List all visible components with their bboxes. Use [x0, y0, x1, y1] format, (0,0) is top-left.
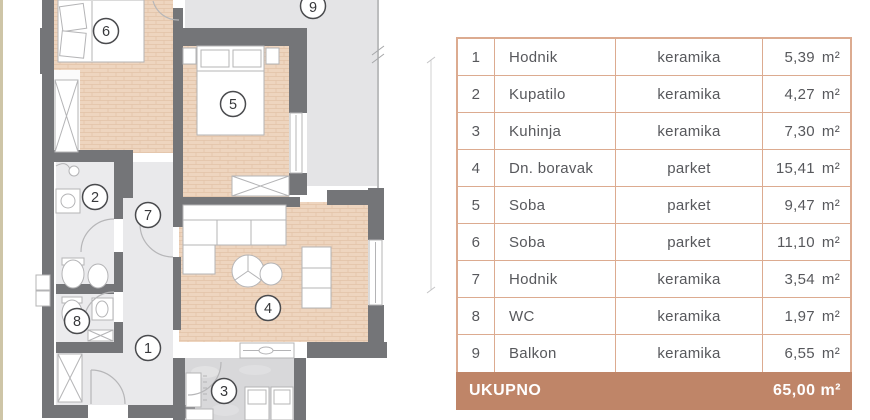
room-area: 15,41m²: [763, 150, 850, 186]
room-number: 8: [458, 298, 495, 334]
room-label: 5: [229, 97, 237, 113]
room-material: keramika: [616, 261, 763, 297]
room-number: 4: [458, 150, 495, 186]
room-name: Soba: [495, 224, 616, 260]
table-row: 8 WC keramika 1,97m²: [458, 298, 850, 335]
room-name: Kupatilo: [495, 76, 616, 112]
room-name: Hodnik: [495, 261, 616, 297]
room-area: 9,47m²: [763, 187, 850, 223]
room-area: 3,54m²: [763, 261, 850, 297]
room-material: keramika: [616, 76, 763, 112]
floorplan-page: 6 9 5 2 7 8 1 4 3 1 Hodnik keramik: [0, 0, 870, 420]
room-number: 2: [458, 76, 495, 112]
room-label: 9: [309, 0, 317, 16]
floor-plan: 6 9 5 2 7 8 1 4 3: [0, 0, 440, 420]
room-material: parket: [616, 150, 763, 186]
table-row: 1 Hodnik keramika 5,39m²: [458, 39, 850, 76]
room-number: 6: [458, 224, 495, 260]
table-row: 2 Kupatilo keramika 4,27m²: [458, 76, 850, 113]
room-area: 1,97m²: [763, 298, 850, 334]
room-area: 11,10m²: [763, 224, 850, 260]
room-label: 3: [220, 384, 228, 400]
table-row: 3 Kuhinja keramika 7,30m²: [458, 113, 850, 150]
room-area: 7,30m²: [763, 113, 850, 149]
total-label: UKUPNO: [469, 382, 541, 400]
room-number: 9: [458, 335, 495, 372]
total-row: UKUPNO 65,00 m²: [456, 372, 852, 410]
room-label: 8: [73, 314, 81, 330]
table-row: 7 Hodnik keramika 3,54m²: [458, 261, 850, 298]
room-areas-table: 1 Hodnik keramika 5,39m² 2 Kupatilo kera…: [456, 37, 852, 374]
room-name: Dn. boravak: [495, 150, 616, 186]
room-name: Kuhinja: [495, 113, 616, 149]
room-label: 6: [102, 24, 110, 40]
room-area: 5,39m²: [763, 39, 850, 75]
room-label: 7: [144, 208, 152, 224]
room-number: 5: [458, 187, 495, 223]
room-number: 3: [458, 113, 495, 149]
table-row: 9 Balkon keramika 6,55m²: [458, 335, 850, 372]
table-row: 4 Dn. boravak parket 15,41m²: [458, 150, 850, 187]
total-area: 65,00 m²: [773, 382, 841, 400]
room-label: 4: [264, 301, 272, 317]
table-row: 5 Soba parket 9,47m²: [458, 187, 850, 224]
room-material: keramika: [616, 298, 763, 334]
room-name: Balkon: [495, 335, 616, 372]
room-label: 1: [144, 341, 152, 357]
room-number: 1: [458, 39, 495, 75]
room-name: Hodnik: [495, 39, 616, 75]
room-name: Soba: [495, 187, 616, 223]
room-name: WC: [495, 298, 616, 334]
room-area: 6,55m²: [763, 335, 850, 372]
room-material: parket: [616, 187, 763, 223]
room-material: keramika: [616, 335, 763, 372]
room-material: keramika: [616, 113, 763, 149]
room-material: keramika: [616, 39, 763, 75]
room-material: parket: [616, 224, 763, 260]
room-label: 2: [91, 190, 99, 206]
table-row: 6 Soba parket 11,10m²: [458, 224, 850, 261]
room-area: 4,27m²: [763, 76, 850, 112]
room-number: 7: [458, 261, 495, 297]
